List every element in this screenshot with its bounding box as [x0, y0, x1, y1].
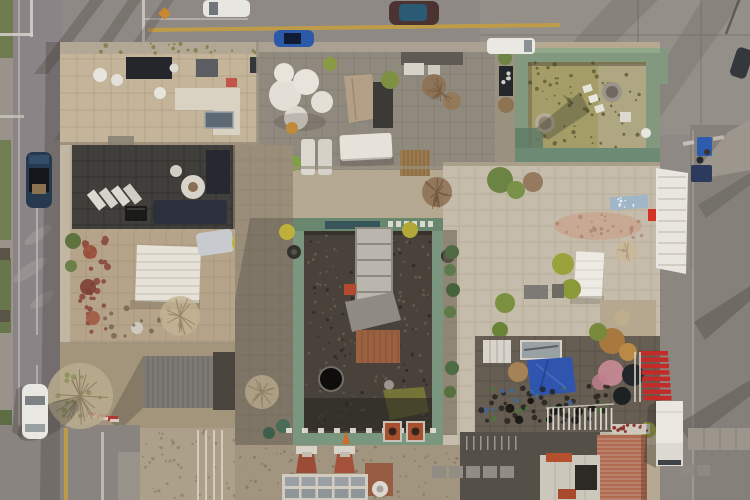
bin-navy: [691, 165, 712, 182]
aerial-scene-canvas: [0, 0, 750, 500]
lounge-shadow: [274, 113, 326, 131]
vent-small-gray: [384, 380, 394, 390]
tan-tarp-structure: [344, 74, 377, 123]
white-bowl-k-core: [377, 486, 384, 493]
satellite-dish-2: [111, 74, 123, 86]
tree-pit-1: [0, 248, 10, 260]
hvac-f-1: [524, 285, 548, 299]
pedestrian-1: [697, 157, 704, 164]
sidewalk-slabs-br: [688, 428, 750, 450]
bush-gh-2: [498, 97, 514, 113]
green-roof-inner-shadow-t: [528, 62, 646, 66]
planter-g2: [381, 71, 399, 89]
truck-windshield: [658, 460, 681, 465]
dried-shrub-g2: [443, 92, 461, 110]
shed-dark-roof: [213, 352, 235, 410]
bush-f-1: [445, 245, 459, 259]
pink-patch-f: [554, 212, 642, 240]
truck-body: [656, 401, 683, 443]
round-table-b-core: [188, 182, 198, 192]
ornament-vent-1-core: [389, 428, 397, 436]
bush-f-6: [444, 386, 456, 398]
round-table-b2: [170, 165, 182, 177]
car-white-rear-window: [25, 424, 45, 432]
dried-grass-j: [508, 362, 528, 382]
red-plant-c3: [86, 311, 100, 325]
chimney-pot-1-collar: [302, 452, 312, 457]
round-table-west-core: [291, 249, 297, 255]
greenhouse-panes-r2: [285, 489, 365, 498]
lane-line-bl: [101, 432, 104, 500]
dark-void-br: [575, 465, 597, 490]
hvac-f-2: [552, 284, 564, 298]
crosswalk-line-h: [0, 33, 33, 36]
tan-parasol-2: [614, 310, 630, 326]
plant-teal-2: [263, 427, 275, 439]
crosswalk-line-v: [30, 0, 33, 37]
daybed-white: [339, 133, 392, 162]
red-box-a: [226, 78, 237, 87]
car-blue-glass: [284, 33, 301, 44]
yellow-line-bl: [64, 428, 68, 500]
car-brown-glass: [399, 4, 427, 21]
skylight-a: [205, 112, 233, 128]
bush-f-2: [444, 264, 456, 276]
red-planter-br-1: [546, 453, 572, 462]
yellow-bush-ne: [402, 222, 418, 238]
green-roof-frame-hl: [515, 48, 660, 53]
white-box-g2: [428, 65, 440, 75]
white-cube-h: [620, 112, 631, 122]
lounge-cover-2: [293, 69, 319, 95]
red-plant-c2: [80, 279, 96, 295]
lower-lounge-2: [318, 139, 332, 175]
leaf-tree-f2: [507, 181, 525, 199]
satellite-dish-3: [154, 87, 166, 99]
blue-mosaic-table: [610, 195, 649, 211]
satellite-dish-4: [170, 64, 179, 73]
brown-shrub-f: [523, 172, 543, 192]
van-white-windshield: [524, 40, 532, 52]
vent-round-black: [320, 368, 342, 390]
hvac-unit-2: [196, 59, 218, 77]
bush-f-4: [444, 306, 456, 318]
pompom-tree-1: [552, 253, 574, 275]
green-tree-j: [589, 323, 607, 341]
chimney-pot-2-collar: [340, 452, 350, 457]
pompom-tree-4: [492, 322, 508, 338]
red-plant-c1: [83, 245, 97, 259]
satellite-dish-1: [93, 68, 107, 82]
greenhouse-panes-r1: [285, 477, 365, 486]
f-edge-top: [443, 162, 660, 166]
car-white-windshield: [25, 396, 45, 405]
navy-furniture: [153, 200, 227, 224]
car-dark-left-cargo: [32, 184, 46, 194]
bush-f-5: [445, 361, 459, 375]
ornament-vent-2-core: [412, 428, 420, 436]
white-box-g1: [404, 63, 424, 75]
bush-f-3: [446, 283, 460, 297]
planter-g1: [323, 57, 337, 71]
paver-pads: [432, 466, 514, 478]
car-dark-left-hood: [29, 155, 49, 164]
solar-panel-gh: [499, 66, 513, 96]
green-roof-bottom-band: [515, 148, 660, 162]
planter-g3: [286, 122, 298, 134]
green-bush-c2: [65, 260, 77, 272]
terrace-c-edge: [60, 342, 235, 345]
grass-strip-2: [0, 140, 11, 240]
rust-panel-1: [356, 330, 400, 363]
planter-wall-f: [443, 230, 457, 435]
yellow-bush-nw: [279, 224, 295, 240]
bench-wood-slats: [404, 150, 428, 176]
red-box-central: [344, 284, 356, 295]
umbrella-dark-2: [613, 387, 631, 405]
pedestrian-2: [704, 149, 710, 155]
pompom-tree-3: [495, 293, 515, 313]
lounge-cover-4: [311, 91, 333, 113]
tree-pit-2: [0, 310, 10, 322]
grass-strip-1: [0, 0, 13, 58]
car-white-topedge-glass: [209, 2, 218, 15]
lounge-cover-5: [274, 63, 294, 83]
white-ball-h: [641, 128, 651, 138]
grill-black: [125, 206, 147, 221]
chimney-cyl-2-core: [606, 86, 618, 98]
navy-unit-tall: [206, 150, 230, 194]
hvac-unit-1: [126, 57, 172, 79]
roof-a-edge: [60, 142, 258, 145]
green-bush-c1: [65, 233, 81, 249]
aerial-rooftop-photo: Aerial top-down drone view of a city blo…: [0, 0, 750, 500]
stop-line-left: [0, 115, 24, 118]
lower-lounge-1: [301, 139, 315, 175]
red-planter-br-2: [558, 489, 576, 499]
